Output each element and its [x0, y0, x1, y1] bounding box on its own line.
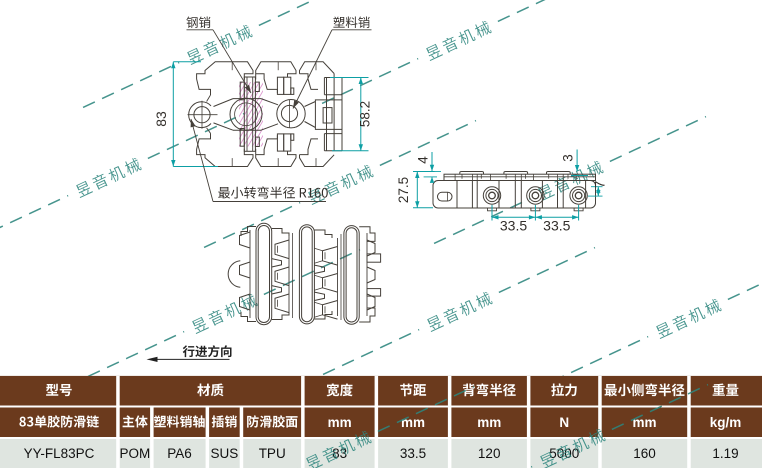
- svg-text:POM: POM: [120, 446, 151, 461]
- svg-text:kg/m: kg/m: [710, 415, 742, 430]
- svg-text:27.5: 27.5: [396, 177, 411, 203]
- svg-text:160: 160: [633, 446, 656, 461]
- svg-text:PA6: PA6: [167, 446, 192, 461]
- svg-text:3: 3: [561, 154, 576, 162]
- svg-text:TPU: TPU: [259, 446, 286, 461]
- svg-text:33.5: 33.5: [400, 446, 426, 461]
- svg-text:mm: mm: [328, 415, 352, 430]
- svg-text:N: N: [559, 415, 569, 430]
- svg-text:7: 7: [593, 181, 608, 189]
- svg-text:120: 120: [478, 446, 501, 461]
- svg-text:mm: mm: [477, 415, 501, 430]
- svg-text:83: 83: [153, 111, 169, 127]
- svg-text:33.5: 33.5: [543, 218, 570, 234]
- svg-text:YY-FL83PC: YY-FL83PC: [24, 446, 95, 461]
- svg-text:mm: mm: [632, 415, 656, 430]
- svg-text:1.19: 1.19: [712, 446, 738, 461]
- svg-text:33.5: 33.5: [500, 218, 527, 234]
- svg-text:58.2: 58.2: [358, 101, 373, 127]
- svg-text:mm: mm: [401, 415, 425, 430]
- svg-text:SUS: SUS: [211, 446, 239, 461]
- svg-text:4: 4: [416, 156, 431, 164]
